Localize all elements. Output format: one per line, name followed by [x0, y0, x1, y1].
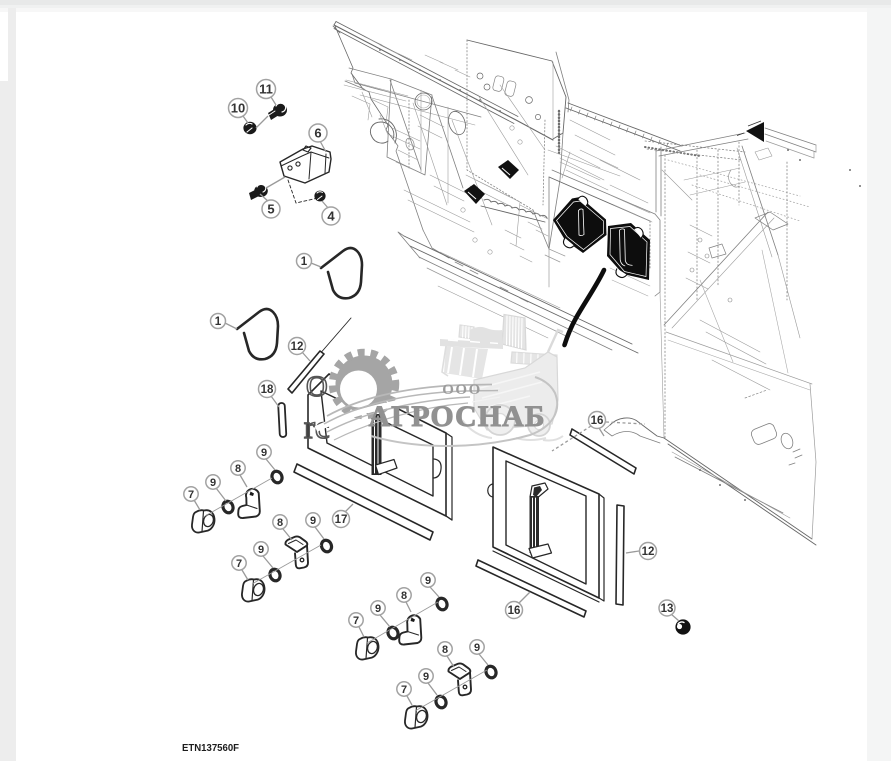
- svg-text:7: 7: [401, 684, 407, 696]
- svg-text:АГРОСНАБ: АГРОСНАБ: [368, 400, 545, 433]
- svg-text:17: 17: [335, 514, 348, 526]
- svg-text:8: 8: [235, 463, 241, 475]
- svg-text:9: 9: [310, 515, 316, 527]
- svg-text:7: 7: [188, 489, 194, 501]
- svg-text:5: 5: [267, 202, 274, 217]
- svg-text:6: 6: [314, 126, 321, 141]
- svg-text:9: 9: [425, 575, 431, 587]
- svg-text:7: 7: [236, 558, 242, 570]
- svg-text:12: 12: [642, 546, 655, 558]
- svg-text:16: 16: [591, 415, 604, 427]
- svg-text:ETN137560F: ETN137560F: [182, 742, 240, 754]
- svg-text:12: 12: [291, 341, 304, 353]
- svg-text:8: 8: [277, 517, 283, 529]
- svg-text:9: 9: [261, 447, 267, 459]
- svg-text:1: 1: [301, 256, 308, 268]
- svg-text:13: 13: [661, 603, 674, 615]
- svg-text:9: 9: [423, 671, 429, 683]
- svg-text:ООО: ООО: [442, 382, 482, 398]
- svg-text:8: 8: [442, 644, 448, 656]
- svg-text:9: 9: [474, 642, 480, 654]
- svg-text:16: 16: [508, 605, 521, 617]
- svg-text:7: 7: [353, 615, 359, 627]
- svg-text:9: 9: [258, 544, 264, 556]
- svg-text:9: 9: [375, 603, 381, 615]
- svg-text:10: 10: [231, 101, 245, 116]
- svg-text:8: 8: [401, 590, 407, 602]
- svg-text:1: 1: [215, 316, 222, 328]
- svg-text:O: O: [306, 370, 328, 403]
- svg-text:18: 18: [261, 384, 274, 396]
- svg-text:4: 4: [327, 209, 335, 224]
- svg-text:11: 11: [259, 82, 273, 97]
- svg-text:9: 9: [210, 477, 216, 489]
